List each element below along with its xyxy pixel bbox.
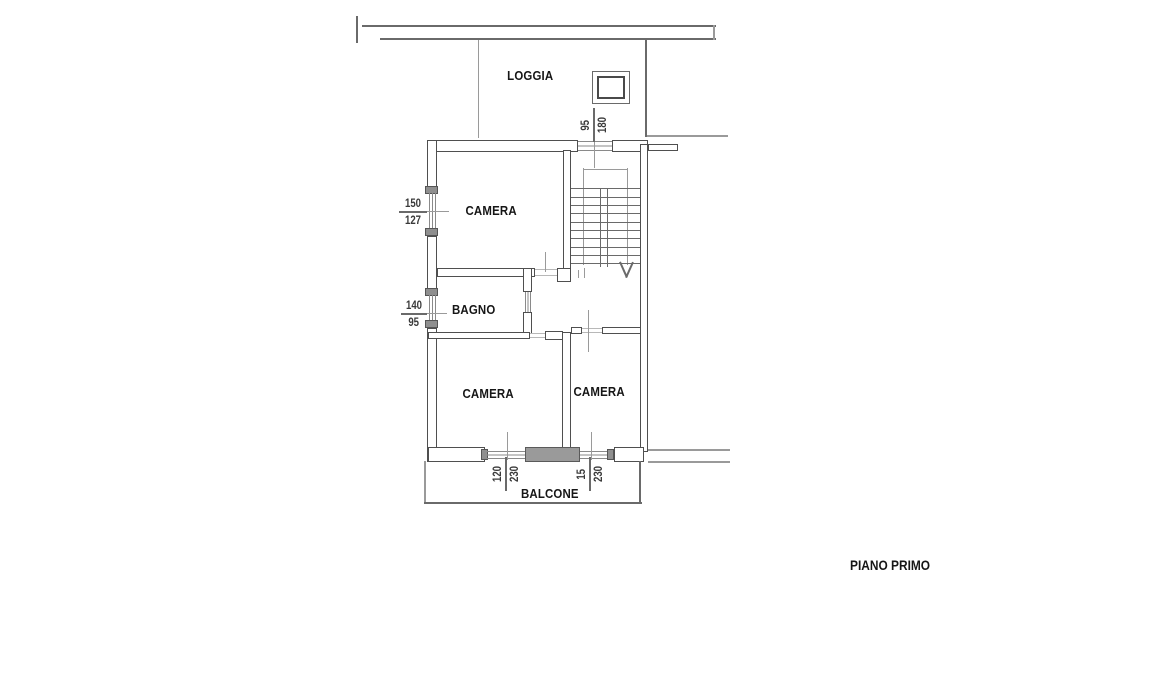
top-wall-line-outer bbox=[362, 25, 716, 27]
right-neighbor-wall-stub bbox=[648, 144, 678, 151]
loggia-pillar-inner bbox=[597, 76, 625, 99]
top-wall-left-segment bbox=[428, 140, 578, 152]
camera-bottom-right-door-line-2 bbox=[582, 332, 602, 333]
stair-tick-1 bbox=[578, 270, 579, 278]
loggia-label: LOGGIA bbox=[500, 67, 560, 83]
stair-tread bbox=[571, 213, 640, 214]
door-dimension-tick-lower bbox=[588, 310, 589, 352]
camera-top-window-sill-lower bbox=[425, 228, 438, 236]
bottom-window-leader-right bbox=[591, 432, 592, 460]
balcony-left-edge bbox=[424, 461, 426, 504]
balcony-bottom-edge bbox=[424, 502, 642, 504]
bagno-door-opening-line-2 bbox=[530, 337, 545, 338]
stairwell-partition-wall bbox=[563, 150, 571, 281]
loggia-bottom-extension-line bbox=[647, 135, 728, 137]
bottom-window-leader-left bbox=[507, 432, 508, 460]
camera-top-bottom-wall bbox=[437, 268, 535, 277]
left-wall-segment-2 bbox=[427, 236, 437, 290]
bagno-window-dimension: 140 95 bbox=[401, 298, 427, 330]
floor-plan-canvas: LOGGIA bbox=[0, 0, 1175, 681]
bagno-door-opening-line-1 bbox=[530, 333, 545, 334]
camera-top-door-opening-line-1 bbox=[535, 269, 557, 270]
bagno-label: BAGNO bbox=[444, 301, 504, 317]
right-wall bbox=[640, 144, 648, 452]
camera-bottom-right-label: CAMERA bbox=[563, 383, 635, 399]
stair-tread bbox=[571, 230, 640, 231]
stair-tread bbox=[571, 238, 640, 239]
bagno-bottom-wall bbox=[428, 332, 530, 339]
bagno-right-wall-lower bbox=[523, 312, 532, 334]
balcone-label: BALCONE bbox=[514, 485, 586, 501]
top-wall-end-tick-left bbox=[356, 16, 358, 43]
bottom-wall-middle-segment bbox=[525, 447, 580, 462]
stair-window bbox=[578, 141, 612, 151]
stair-tread bbox=[571, 222, 640, 223]
stair-window-dimension: 95 180 bbox=[579, 108, 609, 142]
loggia-left-edge bbox=[478, 40, 479, 138]
camera-top-door-opening-line-2 bbox=[535, 275, 557, 276]
stair-window-leader-line bbox=[594, 140, 595, 168]
corridor-pillar-lower bbox=[545, 331, 563, 340]
stair-rail-left bbox=[583, 168, 584, 265]
camera-bottom-left-label: CAMERA bbox=[452, 385, 524, 401]
stair-tread bbox=[571, 188, 640, 189]
balcony-right-edge bbox=[639, 461, 641, 504]
bagno-right-wall-upper bbox=[523, 268, 532, 292]
camera-bottom-right-top-wall-left bbox=[571, 327, 582, 334]
top-wall-end-tick-right bbox=[713, 25, 715, 40]
bagno-partition-glazing bbox=[525, 292, 531, 312]
stair-tread bbox=[571, 205, 640, 206]
floor-title: PIANO PRIMO bbox=[840, 556, 940, 574]
camera-bottom-right-door-line-1 bbox=[582, 328, 602, 329]
right-extension-line-lower bbox=[648, 461, 730, 463]
stair-stringer-right bbox=[607, 188, 608, 267]
stair-tick-2 bbox=[584, 268, 585, 278]
stair-tread bbox=[571, 197, 640, 198]
corridor-junction-pillar bbox=[557, 268, 571, 282]
bottom-wall-left-segment bbox=[428, 447, 485, 462]
right-extension-line-upper bbox=[648, 449, 730, 451]
stair-stringer-left bbox=[600, 188, 601, 267]
camera-top-dimension-leader bbox=[427, 211, 449, 212]
stair-landing-line bbox=[583, 169, 627, 170]
bagno-window bbox=[429, 295, 436, 321]
stair-tread bbox=[571, 263, 640, 264]
camera-bottom-right-top-wall-right bbox=[602, 327, 641, 334]
camera-top-label: CAMERA bbox=[455, 202, 527, 218]
stair-tread bbox=[571, 247, 640, 248]
camera-top-window-dimension: 150 127 bbox=[399, 196, 427, 228]
stair-tread bbox=[571, 255, 640, 256]
door-dimension-tick-upper bbox=[545, 252, 546, 272]
bottom-wall-right-segment bbox=[614, 447, 644, 462]
loggia-right-edge bbox=[645, 40, 647, 137]
bottom-window-sill-right bbox=[607, 449, 614, 460]
left-wall-segment-3 bbox=[427, 328, 437, 462]
stair-rail-right bbox=[627, 168, 628, 265]
top-wall-line-inner bbox=[380, 38, 716, 40]
left-wall-segment-1 bbox=[427, 140, 437, 188]
